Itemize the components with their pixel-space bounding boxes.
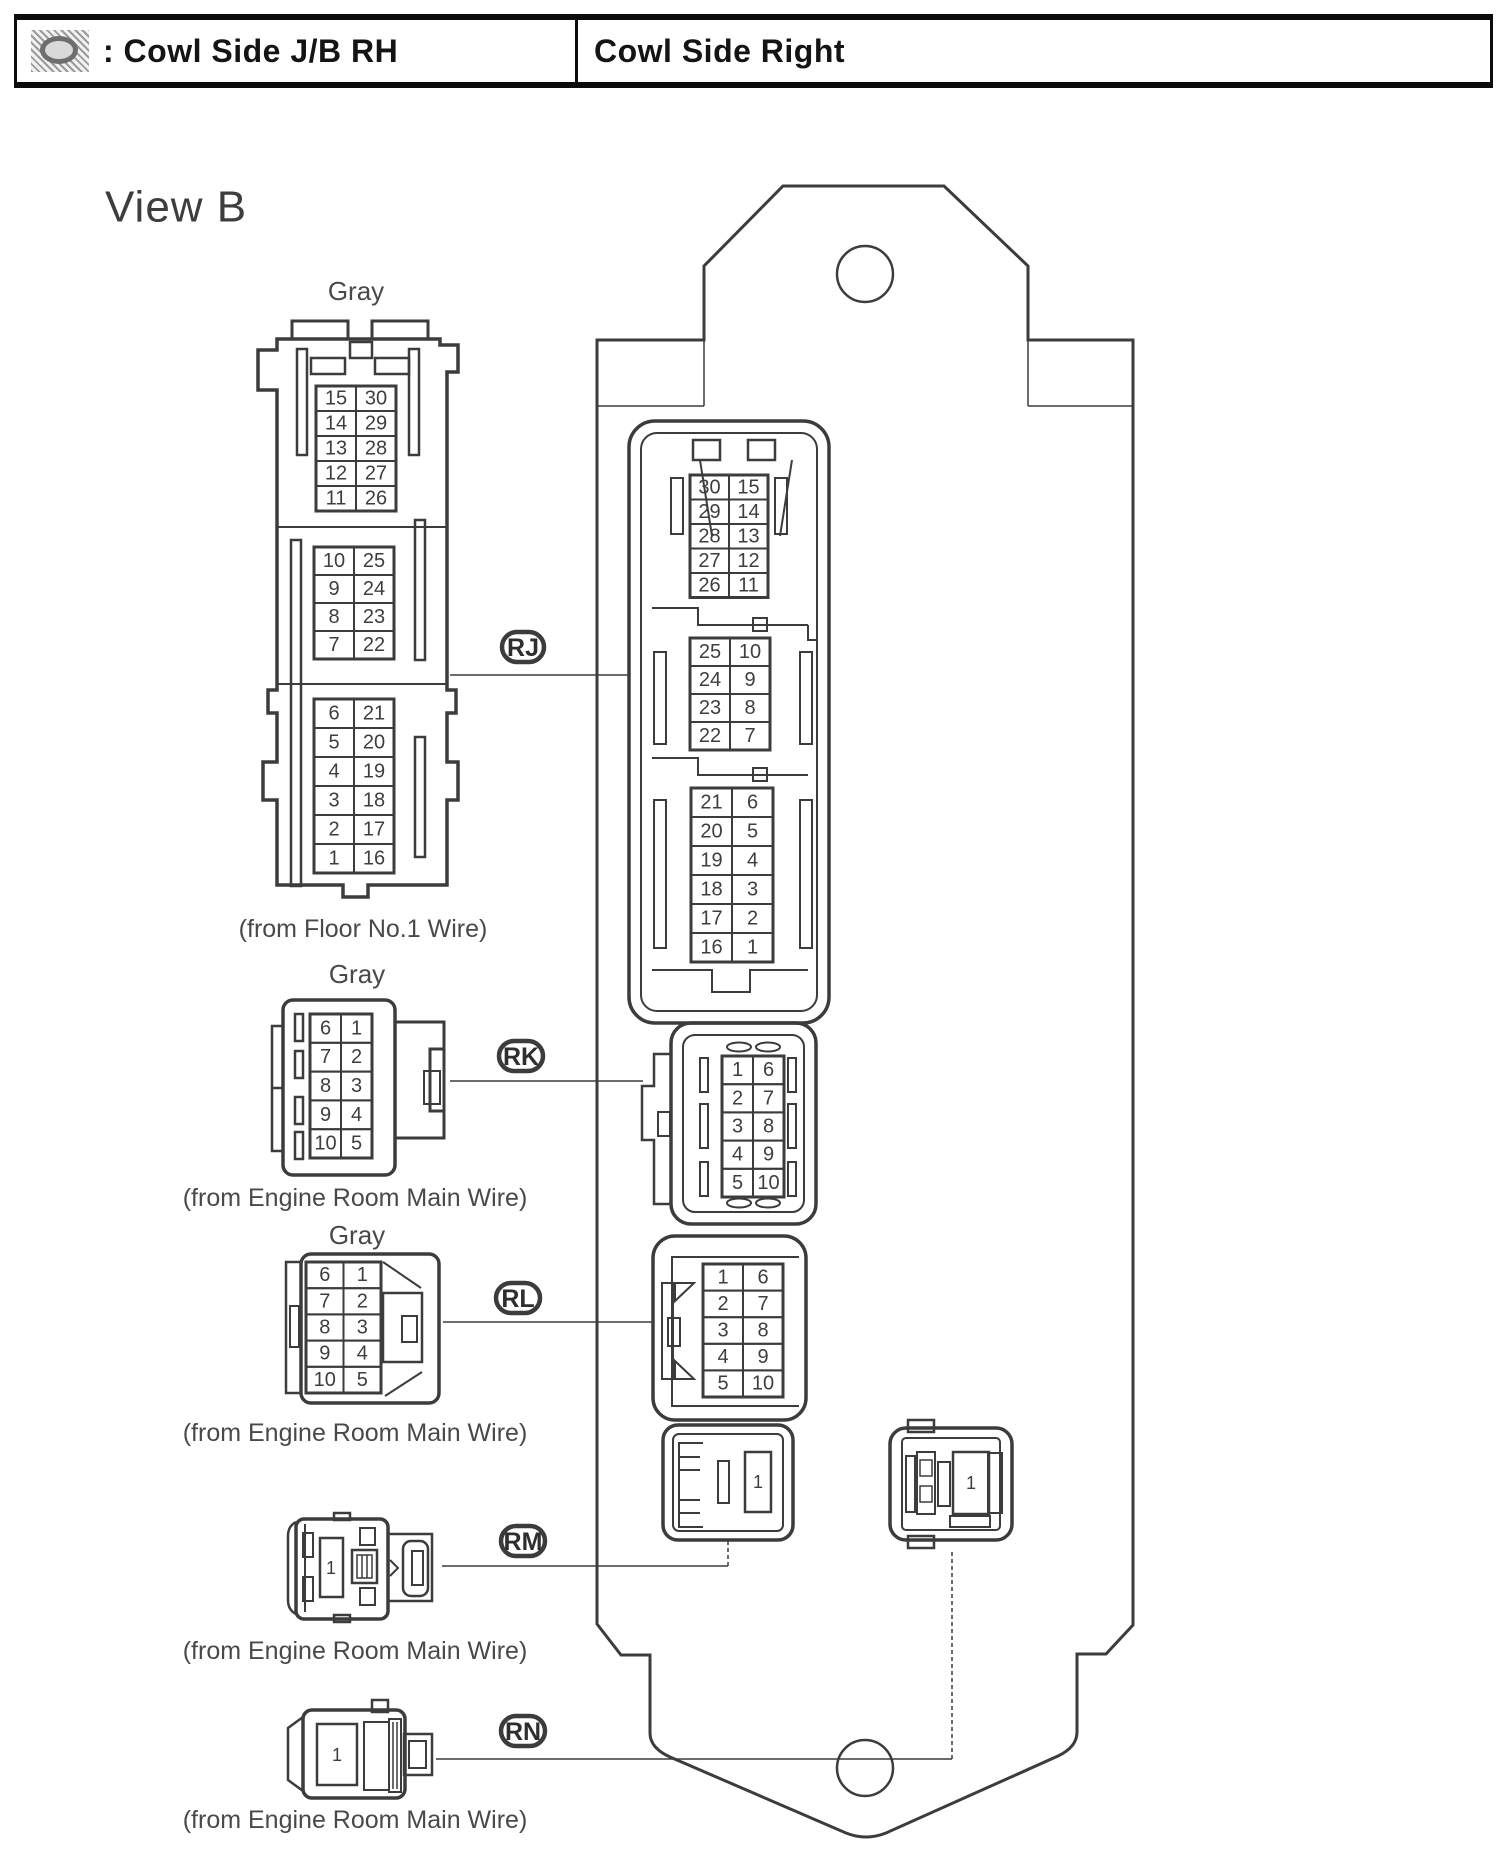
pin-number: 10 [739,641,761,663]
pin-number: 5 [717,1373,728,1395]
pin-number: 13 [737,525,759,547]
pin-number: 29 [365,413,387,435]
rm-panel-pin-number: 1 [753,1472,763,1492]
svg-text:RN: RN [505,1718,541,1746]
pin-number: 20 [363,732,385,754]
pin-number: 28 [698,525,720,547]
view-title: View B [105,183,247,232]
pin-number: 20 [700,821,722,843]
pin-number: 29 [698,501,720,523]
pin-number: 13 [325,438,347,460]
pin-number: 12 [325,463,347,485]
mounting-hole-bottom [837,1740,893,1796]
pin-number: 7 [757,1293,768,1315]
pin-number: 10 [314,1133,336,1155]
rm-harness-pin-number: 1 [326,1558,336,1578]
pin-number: 24 [363,578,385,600]
rl-harness-caption: (from Engine Room Main Wire) [183,1419,528,1447]
pin-number: 9 [744,669,755,691]
pin-number: 10 [323,550,345,572]
pin-number: 26 [698,574,720,596]
pin-number: 2 [747,908,758,930]
pin-number: 6 [763,1059,774,1081]
pin-number: 5 [328,732,339,754]
pin-number: 17 [700,908,722,930]
pin-number: 14 [325,413,347,435]
rj-harness-caption: (from Floor No.1 Wire) [239,915,488,943]
rn-harness-pin-number: 1 [332,1745,342,1765]
pin-number: 8 [757,1320,768,1342]
pin-number: 5 [357,1369,368,1391]
pin-number: 7 [319,1290,330,1312]
pin-number: 2 [717,1293,728,1315]
rj-label: RJ [502,632,544,662]
mounting-hole-top [837,246,893,302]
pin-number: 1 [747,937,758,959]
pin-number: 7 [763,1087,774,1109]
pin-number: 12 [737,550,759,572]
pin-number: 1 [351,1017,362,1039]
rn-harness-caption: (from Engine Room Main Wire) [183,1806,528,1834]
pin-number: 25 [363,550,385,572]
pin-number: 1 [717,1266,728,1288]
pin-number: 5 [351,1133,362,1155]
pin-number: 23 [699,697,721,719]
svg-text:RL: RL [501,1285,534,1313]
pin-number: 2 [357,1290,368,1312]
pin-number: 28 [365,438,387,460]
pin-number: 9 [763,1144,774,1166]
pin-number: 16 [700,937,722,959]
pin-number: 3 [717,1320,728,1342]
pin-number: 8 [319,1317,330,1339]
pin-number: 8 [320,1075,331,1097]
leader-lines [436,675,952,1759]
rk-harness-connector: Gray 61728394105 (from Engine Room Main … [183,959,528,1212]
pin-number: 1 [328,848,339,870]
pin-number: 8 [744,697,755,719]
pin-number: 27 [365,463,387,485]
rk-color-label: Gray [329,959,385,989]
pin-number: 10 [752,1373,774,1395]
rm-harness-caption: (from Engine Room Main Wire) [183,1637,528,1665]
pin-number: 9 [757,1346,768,1368]
pin-number: 7 [320,1046,331,1068]
pin-number: 19 [700,850,722,872]
rj-panel-connector: 30152914281327122611 2510249238227 21620… [629,421,829,1023]
pin-number: 24 [699,669,721,691]
pin-number: 3 [351,1075,362,1097]
rm-panel-connector: 1 [663,1425,793,1540]
rl-panel-connector: 16273849510 [653,1236,806,1420]
pin-number: 5 [732,1172,743,1194]
svg-text:RM: RM [504,1528,543,1556]
pin-number: 10 [314,1369,336,1391]
rj-color-label: Gray [328,276,384,306]
rl-color-label: Gray [329,1220,385,1250]
pin-number: 18 [700,879,722,901]
rm-harness-connector: 1 (from Engine Room Main Wire) [183,1513,528,1665]
rk-harness-caption: (from Engine Room Main Wire) [183,1184,528,1212]
pin-number: 17 [363,819,385,841]
rm-label: RM [501,1526,545,1556]
pin-number: 3 [328,790,339,812]
pin-number: 19 [363,761,385,783]
pin-number: 4 [351,1104,362,1126]
pin-number: 11 [326,488,347,510]
pin-number: 3 [357,1317,368,1339]
pin-number: 6 [320,1017,331,1039]
pin-number: 11 [738,574,759,596]
rn-panel-connector: 1 [890,1420,1012,1548]
pin-number: 8 [763,1116,774,1138]
connector-diagram: View B 30152914281327122611 251024923822… [0,0,1504,1860]
pin-number: 4 [732,1144,743,1166]
pin-number: 30 [698,476,720,498]
pin-number: 9 [319,1343,330,1365]
pin-number: 15 [737,476,759,498]
pin-number: 15 [325,388,347,410]
pin-number: 3 [732,1116,743,1138]
pin-number: 16 [363,848,385,870]
pin-number: 7 [328,634,339,656]
pin-number: 6 [328,703,339,725]
pin-number: 18 [363,790,385,812]
rl-label: RL [496,1283,540,1313]
rk-label: RK [499,1041,543,1071]
pin-number: 10 [757,1172,779,1194]
pin-number: 26 [365,488,387,510]
pin-number: 3 [747,879,758,901]
pin-number: 25 [699,641,721,663]
pin-number: 4 [328,761,339,783]
pin-number: 6 [757,1266,768,1288]
pin-number: 6 [319,1264,330,1286]
rj-harness-connector: Gray 15301429132812271126 1025924823722 … [239,276,488,943]
pin-number: 2 [351,1046,362,1068]
pin-number: 4 [357,1343,368,1365]
pin-number: 6 [747,792,758,814]
pin-number: 7 [744,725,755,747]
rn-harness-connector: 1 (from Engine Room Main Wire) [183,1700,528,1834]
rn-panel-pin-number: 1 [966,1473,976,1493]
rn-label: RN [501,1716,545,1746]
pin-number: 9 [320,1104,331,1126]
pin-number: 4 [747,850,758,872]
pin-number: 2 [732,1087,743,1109]
svg-text:RK: RK [503,1043,539,1071]
pin-number: 21 [700,792,722,814]
pin-number: 27 [698,550,720,572]
pin-number: 2 [328,819,339,841]
svg-text:RJ: RJ [507,634,539,662]
pin-number: 21 [363,703,385,725]
pin-number: 9 [328,578,339,600]
pin-number: 8 [328,606,339,628]
pin-number: 1 [732,1059,743,1081]
pin-number: 14 [737,501,759,523]
pin-number: 30 [365,388,387,410]
rl-harness-connector: Gray 61728394105 (from Engine Room Main … [183,1220,528,1447]
rk-panel-connector: 16273849510 [642,1023,816,1224]
pin-number: 23 [363,606,385,628]
pin-number: 5 [747,821,758,843]
pin-number: 1 [357,1264,368,1286]
pin-number: 4 [717,1346,728,1368]
pin-number: 22 [363,634,385,656]
pin-number: 22 [699,725,721,747]
